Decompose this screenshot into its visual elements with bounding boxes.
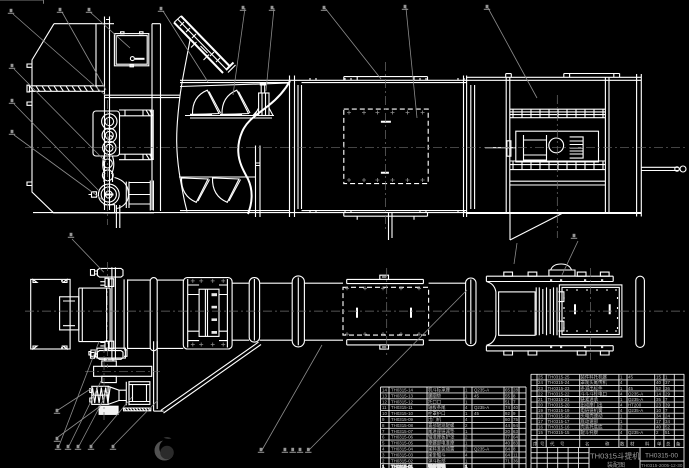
svg-text:TH0315-07: TH0315-07	[391, 429, 414, 434]
svg-text:材: 材	[630, 441, 635, 447]
svg-text:40: 40	[656, 425, 661, 430]
svg-text:71: 71	[505, 458, 510, 463]
svg-text:64: 64	[505, 447, 510, 452]
svg-text:TH0315-17: TH0315-17	[548, 419, 571, 424]
svg-text:TH0315-25: TH0315-25	[548, 375, 571, 380]
svg-text:23: 23	[656, 402, 661, 407]
svg-text:15: 15	[656, 375, 661, 380]
svg-text:Q235-A: Q235-A	[628, 430, 643, 435]
svg-text:13: 13	[382, 393, 387, 398]
svg-text:45: 45	[628, 375, 633, 380]
svg-text:28: 28	[513, 388, 518, 393]
svg-text:10: 10	[656, 408, 661, 413]
svg-text:51: 51	[505, 399, 510, 404]
svg-text:29: 29	[665, 391, 670, 396]
svg-text:51: 51	[665, 430, 670, 435]
svg-text:TH0315-11: TH0315-11	[391, 405, 413, 410]
svg-text:TH0315-2005-12-30: TH0315-2005-12-30	[641, 463, 683, 468]
svg-text:Q235-A: Q235-A	[628, 397, 643, 402]
svg-text:名: 名	[585, 441, 589, 448]
svg-text:17: 17	[656, 419, 661, 424]
svg-text:TH0315-10: TH0315-10	[391, 411, 414, 416]
svg-text:24: 24	[538, 380, 543, 385]
svg-text:64: 64	[513, 435, 518, 440]
svg-text:40: 40	[513, 405, 518, 410]
svg-text:TH0315-21: TH0315-21	[548, 397, 571, 402]
svg-text:34: 34	[656, 414, 661, 419]
svg-text:Q235-A: Q235-A	[474, 405, 489, 410]
svg-text:34: 34	[665, 419, 670, 424]
svg-text:39: 39	[665, 402, 670, 407]
svg-text:弹板簧弹: 弹板簧弹	[428, 463, 446, 468]
svg-text:辊斗托察: 辊斗托察	[581, 429, 599, 436]
svg-text:Q235-A: Q235-A	[628, 391, 643, 396]
svg-text:19: 19	[538, 408, 543, 413]
svg-text:Q235-A: Q235-A	[474, 447, 489, 452]
svg-text:40: 40	[505, 441, 510, 446]
svg-text:TH0315-18: TH0315-18	[548, 414, 571, 419]
svg-text:74: 74	[505, 405, 510, 410]
svg-text:55: 55	[505, 393, 510, 398]
svg-text:65: 65	[505, 388, 510, 393]
svg-text:52: 52	[656, 386, 661, 391]
svg-text:TH0315斗提机: TH0315斗提机	[590, 451, 640, 461]
svg-text:备: 备	[676, 441, 681, 448]
svg-text:45: 45	[628, 386, 633, 391]
svg-text:11: 11	[382, 405, 387, 410]
svg-text:83: 83	[513, 441, 518, 446]
svg-text:TH0315-14: TH0315-14	[391, 388, 414, 393]
svg-text:TH0315-23: TH0315-23	[548, 386, 571, 391]
svg-text:TH0315-01: TH0315-01	[391, 464, 414, 468]
svg-text:称: 称	[605, 441, 610, 448]
svg-text:75: 75	[513, 417, 518, 422]
svg-text:TH0315-04: TH0315-04	[391, 447, 414, 452]
svg-text:77: 77	[505, 435, 510, 440]
svg-text:22: 22	[538, 391, 543, 396]
svg-text:TH0315-03: TH0315-03	[391, 452, 414, 457]
svg-text:10: 10	[382, 411, 387, 416]
svg-text:数: 数	[620, 441, 625, 448]
svg-text:20: 20	[505, 429, 510, 434]
svg-text:23: 23	[538, 386, 543, 391]
svg-text:TH0315-05: TH0315-05	[391, 441, 414, 446]
svg-text:44: 44	[505, 423, 510, 428]
svg-text:TH0315-06: TH0315-06	[391, 435, 414, 440]
svg-text:40: 40	[656, 380, 661, 385]
svg-text:45: 45	[474, 411, 479, 416]
svg-text:序: 序	[533, 441, 538, 448]
svg-text:Q235-A: Q235-A	[628, 408, 643, 413]
svg-text:37: 37	[665, 380, 670, 385]
svg-text:TH0315-13: TH0315-13	[391, 393, 414, 398]
svg-text:Q235-A: Q235-A	[474, 388, 489, 393]
svg-text:TH0315-09: TH0315-09	[391, 417, 414, 422]
svg-text:装配图: 装配图	[607, 461, 625, 468]
svg-text:TH0315-24: TH0315-24	[548, 380, 571, 385]
svg-text:17: 17	[538, 419, 543, 424]
svg-text:TH0315-16: TH0315-16	[548, 425, 571, 430]
svg-text:18: 18	[538, 414, 543, 419]
svg-text:TH0315-20: TH0315-20	[548, 402, 571, 407]
svg-text:TH0315-15: TH0315-15	[548, 430, 571, 435]
svg-text:64: 64	[505, 452, 510, 457]
svg-text:24: 24	[665, 414, 670, 419]
svg-text:TH0315-12: TH0315-12	[391, 399, 414, 404]
svg-text:总: 总	[666, 441, 671, 447]
svg-text:TH0315-00: TH0315-00	[645, 453, 678, 460]
svg-text:36: 36	[665, 386, 670, 391]
svg-text:料: 料	[645, 441, 650, 448]
svg-text:35: 35	[656, 397, 661, 402]
svg-text:63: 63	[513, 429, 518, 434]
svg-text:21: 21	[538, 397, 543, 402]
svg-text:11: 11	[513, 452, 518, 457]
svg-text:12: 12	[382, 399, 387, 404]
svg-text:代: 代	[550, 441, 555, 448]
svg-text:HT200: HT200	[628, 402, 642, 407]
svg-text:15: 15	[538, 430, 543, 435]
svg-text:TH0315-08: TH0315-08	[391, 423, 414, 428]
svg-text:36: 36	[513, 458, 518, 463]
svg-text:25: 25	[538, 375, 543, 380]
svg-text:20: 20	[538, 402, 543, 407]
svg-text:TH0315-02: TH0315-02	[391, 458, 414, 463]
svg-text:14: 14	[656, 391, 661, 396]
svg-text:92: 92	[505, 411, 510, 416]
svg-text:94: 94	[513, 423, 518, 428]
svg-text:45: 45	[474, 393, 479, 398]
svg-text:14: 14	[382, 388, 387, 393]
svg-text:TH0315-22: TH0315-22	[548, 391, 571, 396]
svg-text:托口口: 托口口	[428, 398, 441, 404]
svg-text:16: 16	[538, 425, 543, 430]
svg-text:TH0315-19: TH0315-19	[548, 408, 571, 413]
svg-text:60: 60	[505, 417, 510, 422]
svg-text:52: 52	[665, 425, 670, 430]
svg-text:单: 单	[657, 441, 662, 448]
